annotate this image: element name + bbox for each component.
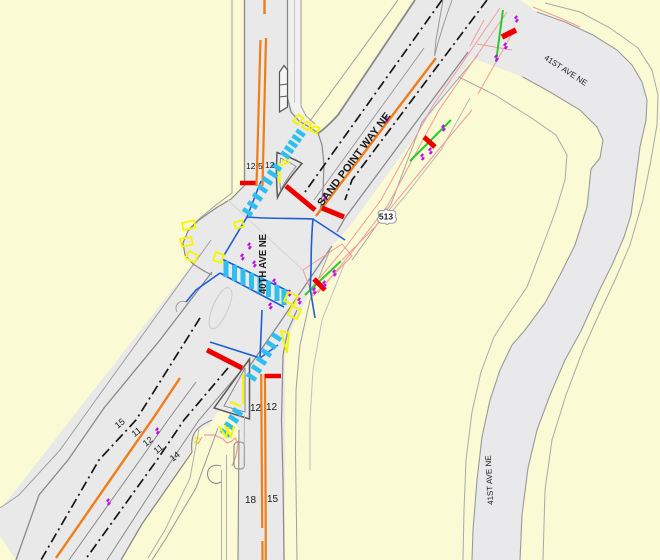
- svg-text:12: 12: [246, 161, 256, 171]
- svg-text:12: 12: [250, 403, 262, 414]
- svg-text:12: 12: [265, 160, 275, 170]
- svg-text:513: 513: [379, 212, 393, 222]
- svg-text:12: 12: [266, 402, 278, 413]
- svg-text:40TH AVE NE: 40TH AVE NE: [258, 234, 269, 294]
- svg-text:5: 5: [258, 161, 263, 171]
- svg-text:18: 18: [245, 495, 257, 506]
- svg-text:15: 15: [267, 494, 279, 505]
